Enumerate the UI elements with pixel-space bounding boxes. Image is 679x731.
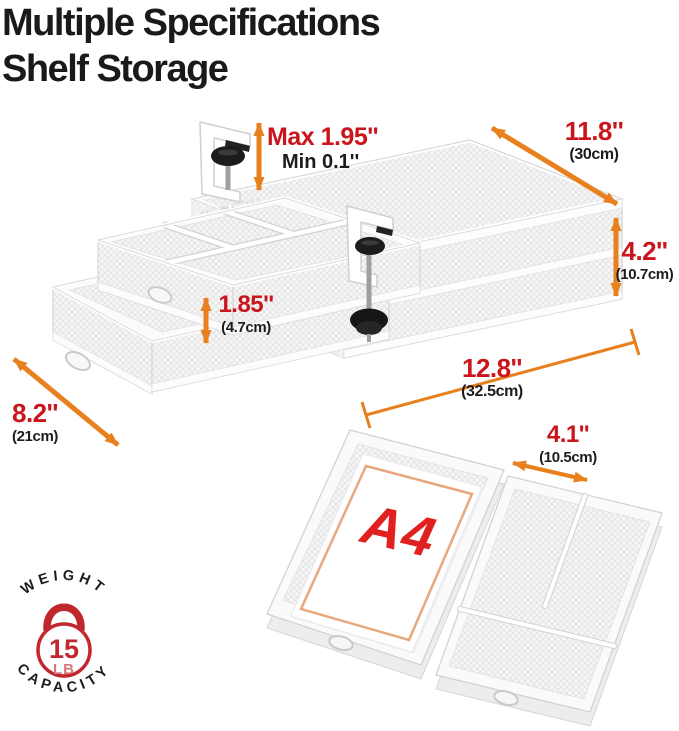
page-title: Multiple Specifications Shelf Storage — [2, 0, 379, 92]
badge-weight-unit: LB — [53, 661, 75, 678]
dim-side: 8.2'' (21cm) — [2, 400, 68, 445]
weight-capacity-badge: WEIGHT CAPACITY 15 LB — [13, 568, 114, 697]
dim-clamp-min: Min 0.1'' — [282, 152, 378, 173]
badge-weight-value: 15 — [49, 634, 79, 664]
dim-compartment: 4.1'' (10.5cm) — [530, 423, 606, 466]
dim-drawer-height: 1.85'' (4.7cm) — [210, 293, 282, 336]
product-infographic: WEIGHT CAPACITY 15 LB Multiple Specifica… — [0, 0, 679, 731]
dim-height: 4.2'' (10.7cm) — [610, 238, 679, 283]
badge-top-text: WEIGHT — [18, 568, 110, 599]
product-illustration: WEIGHT CAPACITY 15 LB — [0, 0, 679, 731]
dim-clamp-range: Max 1.95'' Min 0.1'' — [267, 124, 378, 173]
dim-width: 12.8'' (32.5cm) — [448, 355, 536, 401]
title-line-2: Shelf Storage — [2, 46, 379, 92]
dim-clamp-max: Max 1.95'' — [267, 124, 378, 150]
dim-depth: 11.8'' (30cm) — [546, 118, 642, 164]
top-view-drawing — [267, 430, 662, 726]
title-line-1: Multiple Specifications — [2, 0, 379, 46]
